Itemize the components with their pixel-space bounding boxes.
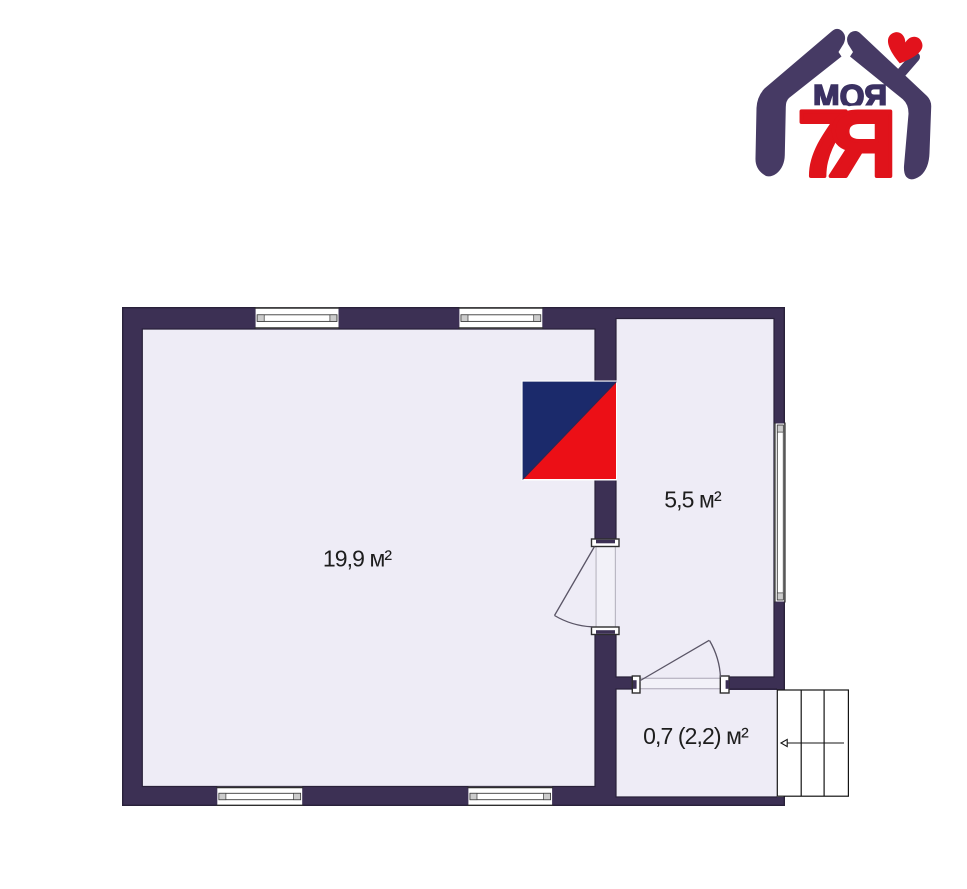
svg-text:19,9 м²: 19,9 м² <box>323 546 393 572</box>
svg-text:Я: Я <box>829 91 897 196</box>
svg-text:5,5 м²: 5,5 м² <box>664 487 722 513</box>
svg-text:0,7 (2,2) м²: 0,7 (2,2) м² <box>643 723 749 749</box>
